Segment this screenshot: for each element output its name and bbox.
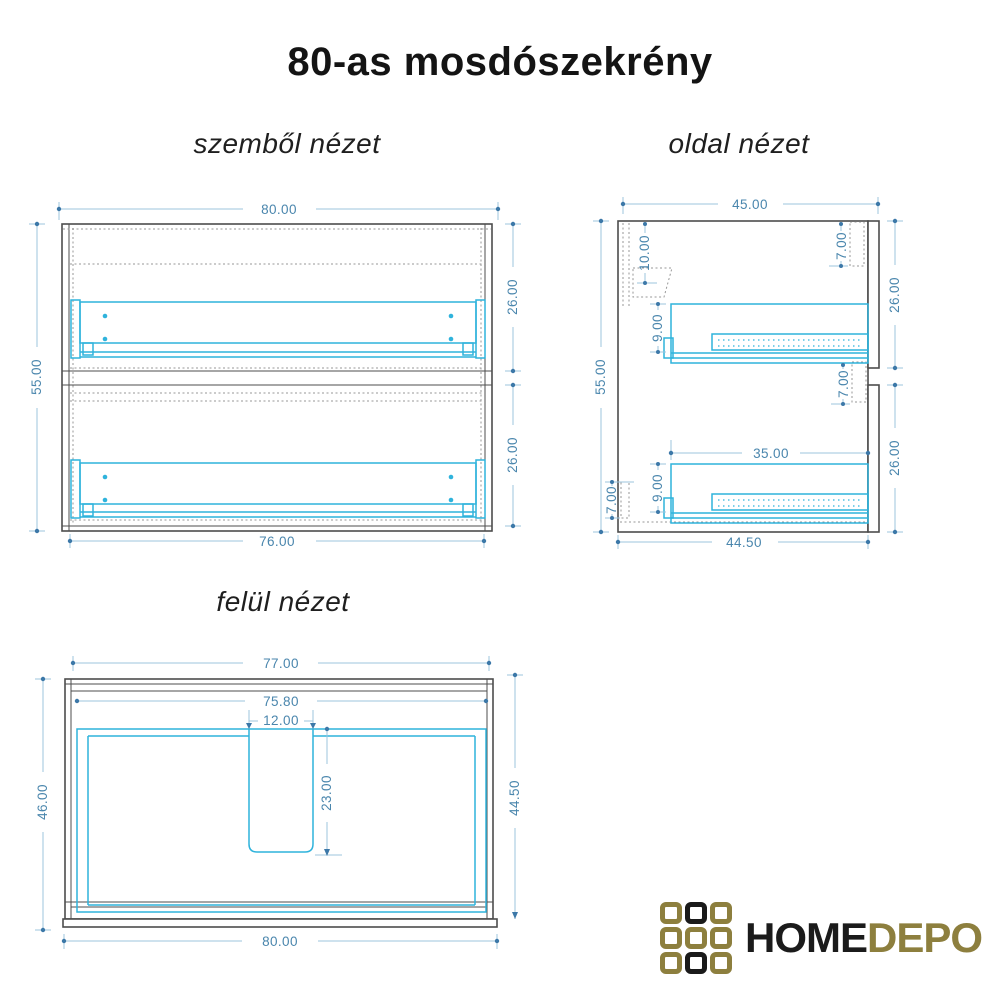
logo-wordmark: HOMEDEPO [745, 914, 982, 962]
side-dim-front-mid-inset: 7.00 [836, 370, 851, 398]
top-front-panel [63, 919, 497, 927]
side-lower-front-panel [868, 385, 879, 532]
side-dim-back-rail: 7.00 [604, 486, 619, 514]
side-dim-front-top-inset: 7.00 [834, 232, 849, 260]
side-dim-height: 55.00 [593, 359, 608, 395]
front-dim-overall-height: 55.00 [29, 359, 44, 395]
logo-word-depo: DEPO [867, 914, 982, 961]
logo-word-home: HOME [745, 914, 867, 961]
logo-grid-cell [660, 927, 682, 949]
front-dim-lower-drawer: 26.00 [505, 437, 520, 473]
logo-grid-cell [685, 952, 707, 974]
side-dim-depth: 45.00 [732, 197, 768, 212]
front-dim-inner-width: 76.00 [259, 534, 295, 549]
top-dim-depth-left: 46.00 [35, 784, 50, 820]
cabinet-drawing-canvas: 80.00 55.00 26.00 26.00 [0, 0, 1000, 1000]
front-dim-upper-drawer: 26.00 [505, 279, 520, 315]
side-dim-bracket-offset: 10.00 [637, 235, 652, 271]
top-view-drawing: 75.80 12.00 [35, 656, 523, 949]
homedepo-logo: HOMEDEPO [660, 902, 982, 974]
top-dim-depth-right: 44.50 [507, 780, 522, 816]
top-dim-carcass-width: 77.00 [263, 656, 299, 671]
top-dim-cutout-depth: 23.00 [319, 775, 334, 811]
logo-grid-cell [660, 952, 682, 974]
side-dim-lower-slide-offset: 9.00 [650, 474, 665, 502]
front-carcass [62, 224, 492, 531]
top-dim-inner-width: 75.80 [263, 694, 299, 709]
logo-grid-cell [685, 927, 707, 949]
side-view-drawing: 45.00 55.00 10.00 7.00 [593, 197, 903, 550]
logo-grid-icon [660, 902, 732, 974]
side-dim-lower-drawer: 26.00 [887, 440, 902, 476]
logo-grid-cell [710, 952, 732, 974]
logo-grid-cell [685, 902, 707, 924]
side-upper-front-panel [868, 221, 879, 368]
side-dim-upper-drawer: 26.00 [887, 277, 902, 313]
top-dim-cutout-width: 12.00 [263, 713, 299, 728]
logo-grid-cell [710, 927, 732, 949]
front-dim-overall-width: 80.00 [261, 202, 297, 217]
technical-drawing-sheet: 80-as mosdószekrény szemből nézet oldal … [0, 0, 1000, 1000]
top-dim-overall-width: 80.00 [262, 934, 298, 949]
side-dim-inner-depth: 44.50 [726, 535, 762, 550]
side-dim-upper-slide-offset: 9.00 [650, 314, 665, 342]
side-dim-drawer-depth: 35.00 [753, 446, 789, 461]
logo-grid-cell [660, 902, 682, 924]
logo-grid-cell [710, 902, 732, 924]
front-view-drawing: 80.00 55.00 26.00 26.00 [29, 202, 521, 549]
